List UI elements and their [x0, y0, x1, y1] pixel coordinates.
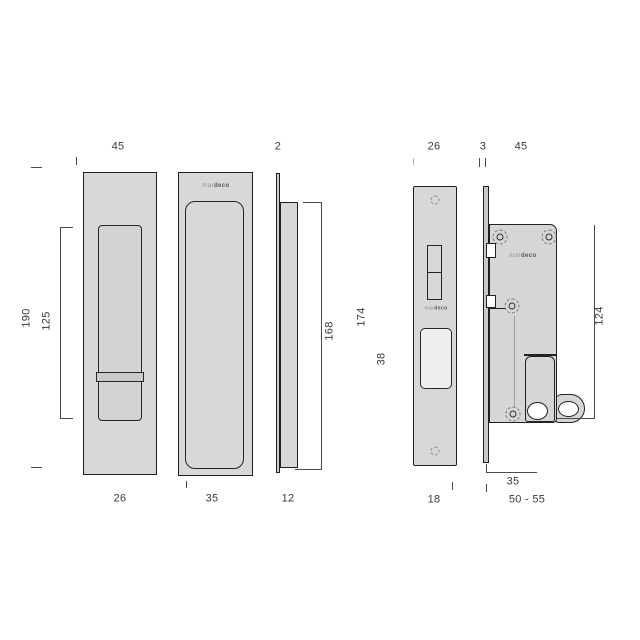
dim-lock-case-width: 45	[515, 142, 528, 153]
dim-tick	[452, 482, 453, 490]
dim-bracket-cap	[60, 418, 73, 419]
dim-lock-case-height: 124	[595, 306, 606, 325]
dim-pull-width-top: 45	[112, 142, 125, 153]
dim-pull-recess-height: 125	[42, 311, 53, 330]
hook-bolt-eye	[558, 401, 579, 417]
dim-bracket-cap	[486, 472, 537, 473]
dim-pull-recess-width: 26	[114, 494, 127, 505]
screw-hole	[431, 447, 440, 456]
dim-bracket	[321, 202, 322, 470]
dim-tick	[486, 484, 487, 492]
lock-faceplate-view: mardeco	[413, 186, 457, 466]
dim-tick	[31, 167, 42, 168]
dim-lock-opening-width: 18	[428, 495, 441, 506]
dim-pull-back-recess-width: 35	[206, 494, 219, 505]
dim-tick	[186, 481, 187, 488]
dim-tick	[485, 158, 486, 167]
dim-profile-plate-thickness: 2	[275, 142, 281, 153]
brand-logo: mardeco	[202, 183, 229, 189]
flush-pull-exterior-view	[83, 172, 157, 475]
dim-door-thickness-range: 50 - 55	[509, 495, 545, 506]
dim-tick	[31, 467, 42, 468]
brand-logo: mardeco	[424, 307, 447, 312]
dim-tick	[76, 157, 77, 165]
screw-hole	[505, 299, 520, 314]
dim-profile-overall-height: 174	[357, 307, 368, 326]
screw-hole	[431, 196, 440, 205]
dim-bracket	[60, 227, 61, 419]
dim-pull-overall-height: 190	[22, 308, 33, 327]
snib-divider	[428, 272, 441, 273]
faceplate-notch	[486, 295, 496, 308]
brand-suffix: deco	[214, 183, 230, 189]
pull-flip-latch	[96, 372, 144, 382]
brand-logo: mardeco	[509, 253, 536, 259]
faceplate-notch	[486, 243, 496, 258]
dim-bracket-cap	[557, 418, 595, 419]
pull-recess-back	[185, 201, 244, 469]
brand-suffix: deco	[434, 306, 447, 312]
dim-bracket-cap	[60, 227, 73, 228]
screw-hole	[542, 230, 557, 245]
brand-suffix: deco	[521, 253, 537, 259]
dim-bracket-cap	[295, 469, 322, 470]
dim-tick	[413, 158, 414, 165]
housing-slot	[527, 402, 548, 420]
dim-lock-plate-thickness: 3	[480, 142, 486, 153]
case-internal-line	[514, 316, 515, 406]
technical-drawing: 45 190 125 26 mardeco 35 2 168 174 38 12…	[0, 0, 640, 640]
dim-lock-backset: 35	[507, 477, 520, 488]
dim-lock-faceplate-width: 26	[428, 142, 441, 153]
pull-recess	[98, 225, 142, 421]
screw-hole	[493, 230, 508, 245]
dim-profile-body-thickness: 12	[282, 494, 295, 505]
screw-hole	[506, 407, 521, 422]
dim-tick	[479, 158, 480, 167]
dim-profile-body-height: 168	[325, 321, 336, 340]
case-internal-line	[490, 308, 506, 309]
brand-prefix: mar	[509, 253, 521, 259]
brand-prefix: mar	[424, 306, 434, 312]
flush-pull-interior-view: mardeco	[178, 172, 253, 476]
brand-prefix: mar	[202, 183, 214, 189]
dim-bracket-cap	[303, 202, 322, 203]
dim-profile-depth: 38	[377, 353, 388, 366]
hook-bolt-opening	[420, 328, 452, 389]
pull-profile-body	[280, 202, 298, 468]
